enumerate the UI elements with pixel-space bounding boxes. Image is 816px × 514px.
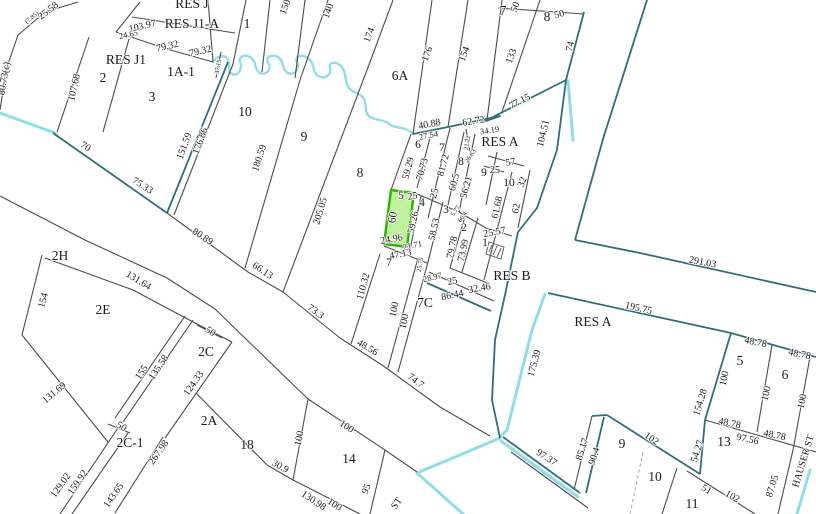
map-label: 9 — [481, 167, 487, 179]
map-label: 8 — [544, 9, 551, 24]
map-label: RES J1-A — [165, 16, 220, 31]
map-label: RES J1 — [106, 52, 146, 67]
map-label: 2C-1 — [117, 435, 144, 450]
map-label: 4 — [419, 197, 425, 209]
map-label: 6A — [392, 68, 409, 83]
map-label: 6 — [415, 139, 421, 151]
map-label: 7C — [417, 295, 433, 310]
map-label: 2H — [52, 248, 69, 263]
map-label: 10 — [648, 469, 662, 484]
map-label: 60 — [386, 211, 400, 225]
map-label: 2C — [198, 344, 214, 359]
boundary-line — [592, 415, 607, 416]
map-label: 8 — [458, 156, 464, 168]
map-label: 7 — [386, 257, 392, 269]
map-label: 57 — [505, 156, 517, 169]
map-label: 1 — [244, 16, 251, 31]
map-label: RES A — [574, 314, 611, 329]
map-label: 3 — [149, 89, 156, 104]
map-label: 1A-1 — [167, 64, 195, 79]
parcel-map-viewport: RES JRES J1-A1103.9724.6579.3279.3225.58… — [0, 0, 816, 514]
map-label: 25 — [407, 190, 419, 203]
map-label: 18 — [240, 437, 254, 452]
map-label: 14 — [342, 451, 356, 466]
map-label: 2E — [96, 302, 111, 317]
map-label: 9 — [301, 129, 308, 144]
map-label: 9 — [619, 436, 626, 451]
map-label: 10 — [503, 177, 515, 189]
map-label: RES A — [481, 134, 518, 149]
map-label: 7 — [439, 142, 445, 154]
map-label: 2 — [100, 70, 107, 85]
map-label: 25 — [490, 165, 500, 176]
map-label: 11 — [686, 496, 699, 511]
map-label: 7 — [500, 3, 507, 18]
map-label: 3 — [443, 204, 449, 216]
map-label: 5 — [737, 353, 744, 368]
map-label: 5 — [398, 190, 404, 202]
map-label: 8 — [357, 165, 364, 180]
map-label: 6 — [782, 367, 789, 382]
map-label: 2A — [201, 413, 218, 428]
map-label: 2 — [461, 222, 467, 234]
map-label: RES J — [175, 0, 208, 11]
map-label: 10 — [238, 104, 252, 119]
map-label: 13 — [717, 434, 731, 449]
map-label: RES B — [493, 268, 530, 283]
parcel-map: RES JRES J1-A1103.9724.6579.3279.3225.58… — [0, 0, 816, 514]
